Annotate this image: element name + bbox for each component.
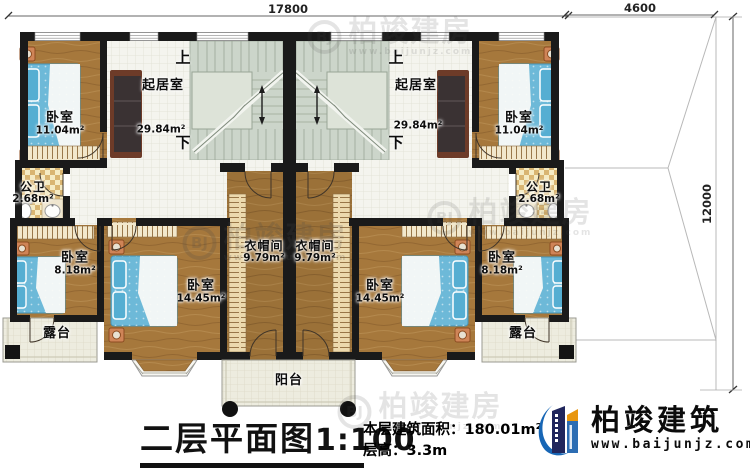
dim-roof-width: 4600 — [624, 1, 656, 15]
brand-logo: 柏竣建筑 www.baijunjz.com — [533, 399, 750, 457]
brand-url: www.baijunjz.com — [591, 438, 750, 451]
title-underline — [140, 463, 364, 468]
left-unit — [3, 32, 295, 376]
floor-height-label: 层高： — [363, 443, 407, 459]
floor-area-value: 180.01m² — [465, 422, 542, 438]
dim-top-width: 17800 — [268, 2, 308, 16]
stair-down-label-right: 下 — [388, 132, 403, 153]
page-title: 二层平面图 — [140, 412, 315, 460]
balcony — [222, 360, 356, 417]
floor-area-label: 本层建筑面积： — [363, 422, 465, 438]
floor-height-value: 3.3m — [407, 443, 448, 459]
floorplan-page: 17800 4600 12000 BJ 柏竣建房 www.baijunjz.co… — [0, 0, 750, 471]
brand-name: 柏竣建筑 — [591, 406, 750, 435]
right-unit-mirror — [284, 32, 576, 376]
brand-building-icon — [533, 399, 585, 457]
stair-down-label-left: 下 — [175, 132, 190, 153]
roof-outline — [565, 17, 716, 340]
dim-right-height: 12000 — [700, 184, 714, 224]
info-block: 本层建筑面积：180.01m² 层高：3.3m — [363, 420, 542, 462]
stair-up-label-left: 上 — [175, 47, 190, 68]
stair-up-label-right: 上 — [388, 47, 403, 68]
